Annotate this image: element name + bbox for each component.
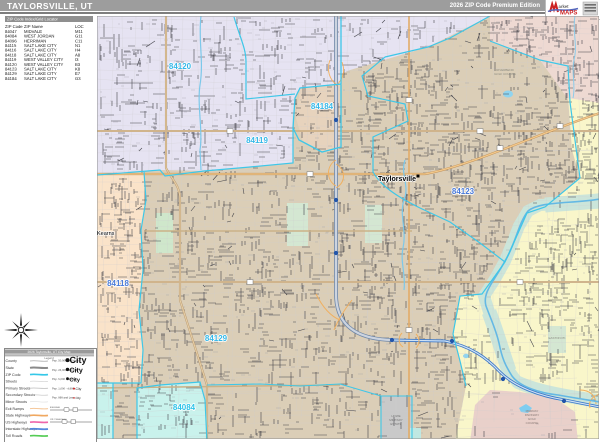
svg-text:City: City (70, 378, 81, 384)
svg-text:Kearns: Kearns (97, 231, 115, 237)
svg-text:ZIP Code: ZIP Code (6, 373, 21, 377)
svg-text:Primary Streets: Primary Streets (6, 386, 31, 390)
svg-text:84084: 84084 (173, 403, 196, 412)
svg-text:84120: 84120 (169, 62, 192, 71)
svg-text:Pop. 1,000 - 4,999: Pop. 1,000 - 4,999 (52, 387, 75, 390)
svg-text:84123: 84123 (452, 187, 475, 196)
svg-text:Pop. 999 and Less: Pop. 999 and Less (52, 397, 75, 400)
svg-text:84184: 84184 (5, 76, 17, 81)
svg-text:US / State Hwy: US / State Hwy (50, 418, 67, 421)
svg-text:EASTON PK: EASTON PK (548, 336, 565, 340)
svg-text:LAKES GC: LAKES GC (458, 180, 474, 184)
svg-text:Streets: Streets (6, 380, 18, 384)
svg-text:City: City (76, 396, 82, 400)
svg-text:Minor Streets: Minor Streets (6, 400, 28, 404)
svg-text:City: City (70, 355, 87, 365)
svg-text:State Highways: State Highways (6, 414, 31, 418)
svg-text:GOLF COURSE: GOLF COURSE (494, 72, 516, 76)
svg-text:84129: 84129 (205, 334, 228, 343)
svg-text:County: County (6, 359, 18, 363)
svg-text:ESTATE: ESTATE (390, 422, 401, 426)
svg-text:Taylorsville: Taylorsville (378, 176, 416, 183)
svg-text:Exit Ramps: Exit Ramps (6, 407, 25, 411)
svg-text:COURSE: COURSE (526, 421, 539, 425)
svg-text:arket: arket (559, 4, 570, 9)
svg-text:State: State (6, 366, 14, 370)
svg-text:ZIP Code Index/Grid Locator: ZIP Code Index/Grid Locator (7, 17, 59, 22)
svg-text:84184: 84184 (311, 102, 334, 111)
svg-text:City: City (70, 366, 83, 374)
svg-text:G3: G3 (75, 76, 81, 81)
svg-text:Interstate: Interstate (50, 406, 61, 409)
svg-text:US Highways: US Highways (6, 420, 28, 424)
svg-text:SALT LAKE CITY: SALT LAKE CITY (24, 76, 57, 81)
svg-text:City: City (76, 387, 82, 391)
svg-text:84119: 84119 (246, 136, 268, 145)
svg-text:Toll Roads: Toll Roads (6, 434, 23, 438)
svg-text:2026 Taylorsville, UT City Map: 2026 Taylorsville, UT City Map (28, 350, 71, 354)
svg-text:84118: 84118 (107, 279, 129, 288)
